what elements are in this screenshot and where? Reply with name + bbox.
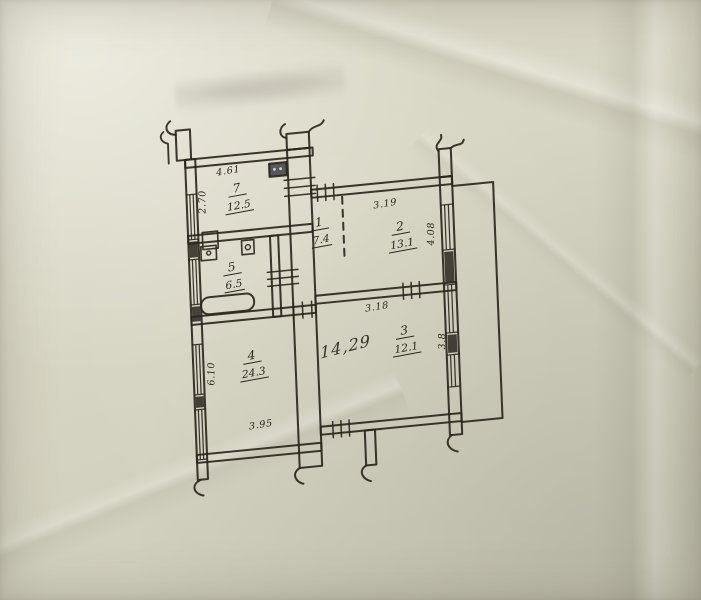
- sink-drain-icon: [207, 251, 211, 255]
- dim-room7-depth: 2.70: [197, 190, 208, 214]
- wall-break-squiggle: [447, 435, 457, 453]
- room-1-label: 1 7.4: [301, 210, 340, 250]
- wall-room4-bottom: [197, 443, 322, 463]
- wall-room7-bottom: [188, 224, 313, 244]
- dim-room2-depth: 4.08: [426, 222, 437, 246]
- floorplan-photo: 4.61 7 12.5 2.70 5 6.5 1 7.4 3.19 2 13.1…: [0, 0, 701, 600]
- room-number: 3: [394, 323, 414, 340]
- wall-break-squiggle: [295, 468, 304, 485]
- wall-stub-top-left: [176, 129, 191, 160]
- room-number: 2: [390, 219, 410, 236]
- dim-room4-depth: 6.10: [206, 362, 217, 386]
- wall-break-squiggle: [166, 121, 176, 136]
- floorplan-drawing: 4.61 7 12.5 2.70 5 6.5 1 7.4 3.19 2 13.1…: [185, 130, 507, 502]
- paper-crease: [560, 0, 700, 600]
- wall-top-room2: [311, 176, 452, 198]
- toilet-bowl-icon: [245, 244, 250, 250]
- toilet-icon: [241, 240, 254, 255]
- wall-stub-top-center: [286, 132, 309, 150]
- wall-break-squiggle: [362, 465, 371, 482]
- wall-break-squiggle: [194, 480, 203, 497]
- ink-bleedthrough-smudge: [173, 61, 346, 118]
- vent-shaft-icon: [269, 162, 287, 177]
- wall-room5-right: [270, 235, 281, 317]
- wall-stub-top-left-outer: [161, 132, 169, 165]
- wall-right-exterior: [440, 176, 463, 435]
- hall-dashed-partition: [342, 197, 345, 260]
- dim-room3-depth: 3.8: [437, 332, 448, 350]
- door-opening-ticks: [264, 168, 425, 444]
- room-number: 4: [242, 348, 262, 365]
- wall-stub-top-right: [439, 148, 452, 177]
- wall-entry-corridor: [365, 430, 377, 466]
- wall-top-room7: [185, 148, 313, 169]
- room-number: 7: [227, 181, 247, 198]
- room-number: 5: [222, 259, 242, 276]
- room-number: 1: [309, 215, 329, 232]
- room-5-label: 5 6.5: [212, 255, 253, 295]
